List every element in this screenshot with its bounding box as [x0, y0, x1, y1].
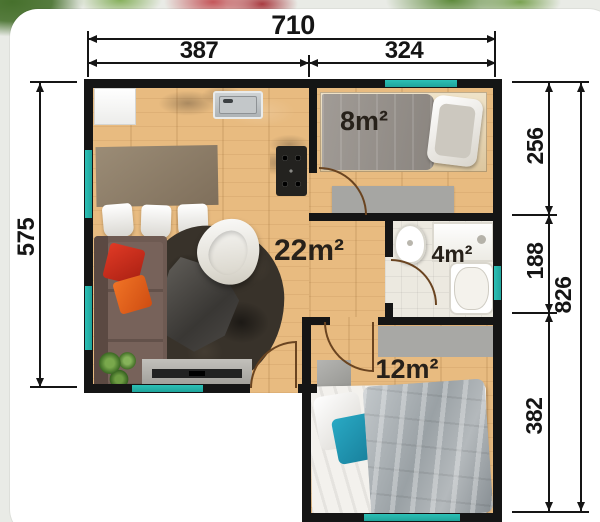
window-marker [85, 150, 92, 218]
door-leaf-entry [295, 341, 297, 388]
wall-exterior-bedroom-large-left [302, 317, 311, 522]
dimension-label-right-bottom: 382 [510, 391, 558, 441]
dimension-label-total-width: 710 [253, 12, 333, 38]
dimension-arrow [545, 215, 553, 224]
dimension-arrow [36, 378, 44, 387]
tv [152, 369, 242, 378]
wall-interior-bedroom-large-top [378, 317, 502, 325]
dimension-arrow [545, 206, 553, 215]
dimension-arrow [577, 83, 585, 92]
window-marker [385, 80, 457, 87]
bedroom-large-rug [378, 326, 494, 357]
dimension-label-height-left: 575 [3, 212, 51, 262]
dimension-arrow [88, 35, 97, 43]
room-label-living: 22m² [259, 234, 359, 268]
dining-chair [140, 204, 171, 238]
room-label-bathroom: 4m² [412, 241, 492, 268]
dimension-label-total-height: 826 [539, 270, 587, 320]
bed-large-duvet [362, 378, 493, 520]
dimension-arrow [545, 83, 553, 92]
dimension-label-right-top: 256 [511, 121, 559, 171]
dimension-arrow [88, 59, 97, 67]
extension-line [512, 511, 589, 513]
dimension-arrow [487, 35, 496, 43]
dimension-label-width-right: 324 [364, 39, 444, 62]
room-label-bedroom-large: 12m² [357, 354, 457, 385]
bed-small-pillow [426, 94, 484, 168]
stove-cooktop [276, 146, 307, 196]
bathtub [449, 262, 494, 315]
dimension-arrow [36, 83, 44, 92]
kitchen-sink [213, 91, 263, 119]
floor-hallway [309, 213, 393, 325]
dimension-arrow [487, 59, 496, 67]
window-marker [494, 266, 501, 300]
wall-interior-living-bedroom [309, 79, 317, 173]
dimension-arrow [309, 59, 318, 67]
fridge [94, 88, 136, 125]
dimension-arrow [545, 502, 553, 511]
dimension-label-width-left: 387 [159, 39, 239, 62]
window-marker [85, 286, 92, 350]
dimension-arrow [300, 59, 309, 67]
dimension-arrow [577, 502, 585, 511]
wall-exterior-right [493, 79, 502, 522]
window-marker [364, 514, 460, 521]
floorplan-canvas: 710 387 324 575 256 188 826 382 22m² 8m²… [0, 0, 600, 522]
dining-chair [102, 203, 135, 238]
bed-large [310, 383, 488, 517]
wall-interior-bathroom-left [385, 221, 393, 257]
dining-table [95, 145, 218, 207]
window-marker [132, 385, 203, 392]
room-label-bedroom-small: 8m² [324, 106, 404, 136]
